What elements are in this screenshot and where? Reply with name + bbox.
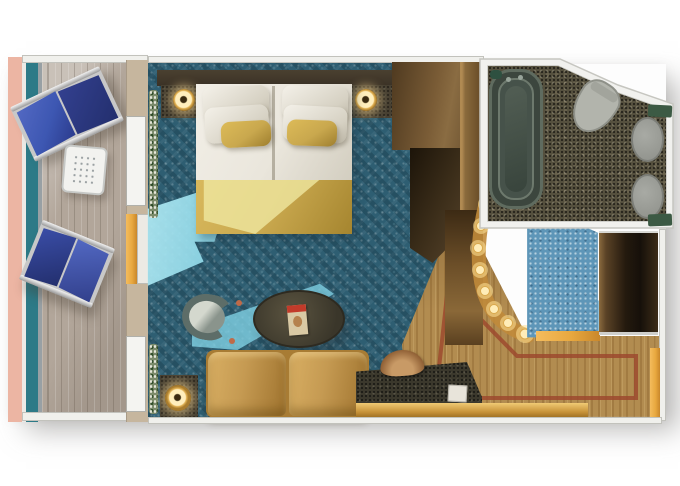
plant-strip-upper — [149, 90, 158, 218]
corridor-threshold — [536, 331, 600, 341]
chair-arm-accent — [236, 300, 242, 306]
towel-lower — [648, 214, 672, 227]
magazine-cover-photo — [293, 316, 303, 328]
king-bed — [196, 84, 352, 234]
credenza-front — [356, 403, 588, 418]
floorplan-canvas — [0, 0, 680, 486]
cabin-bottom-wall — [148, 417, 662, 424]
bathtub-basin — [505, 86, 527, 192]
perforated-side-table — [61, 144, 108, 196]
bed-foot-runner — [196, 180, 352, 234]
table-hole-pattern — [71, 154, 99, 186]
bed-sunlight-highlight — [196, 180, 352, 234]
balcony-window-panel — [126, 116, 146, 206]
table-lamp-right — [355, 89, 377, 111]
chair-arm-accent — [229, 338, 235, 344]
sink-upper — [631, 117, 664, 162]
side-table-lamp — [165, 385, 191, 411]
magazine — [287, 304, 309, 336]
magazine-masthead — [287, 304, 307, 313]
note-card — [448, 385, 468, 403]
towel-upper — [648, 104, 673, 117]
pillow-gold — [287, 119, 338, 147]
bathtub-faucet — [518, 75, 523, 80]
bathroom-plant — [490, 70, 502, 79]
plant-strip-lower — [149, 344, 158, 414]
sofa-cushion — [208, 352, 286, 416]
right-wall-lower — [659, 229, 666, 421]
entry-door — [650, 348, 660, 420]
bathtub — [489, 69, 543, 209]
balcony-door-panel — [126, 336, 146, 412]
leather-sofa — [206, 350, 369, 418]
entry-closet — [599, 231, 658, 335]
bathtub-faucet — [506, 77, 511, 82]
balcony-door-open — [126, 214, 137, 284]
oval-coffee-table — [253, 290, 345, 348]
table-lamp-left — [173, 89, 195, 111]
pillow-gold — [220, 120, 271, 149]
sink-lower — [631, 174, 664, 219]
tub-chair-seat — [186, 298, 227, 336]
bed-center-crease — [272, 86, 275, 180]
